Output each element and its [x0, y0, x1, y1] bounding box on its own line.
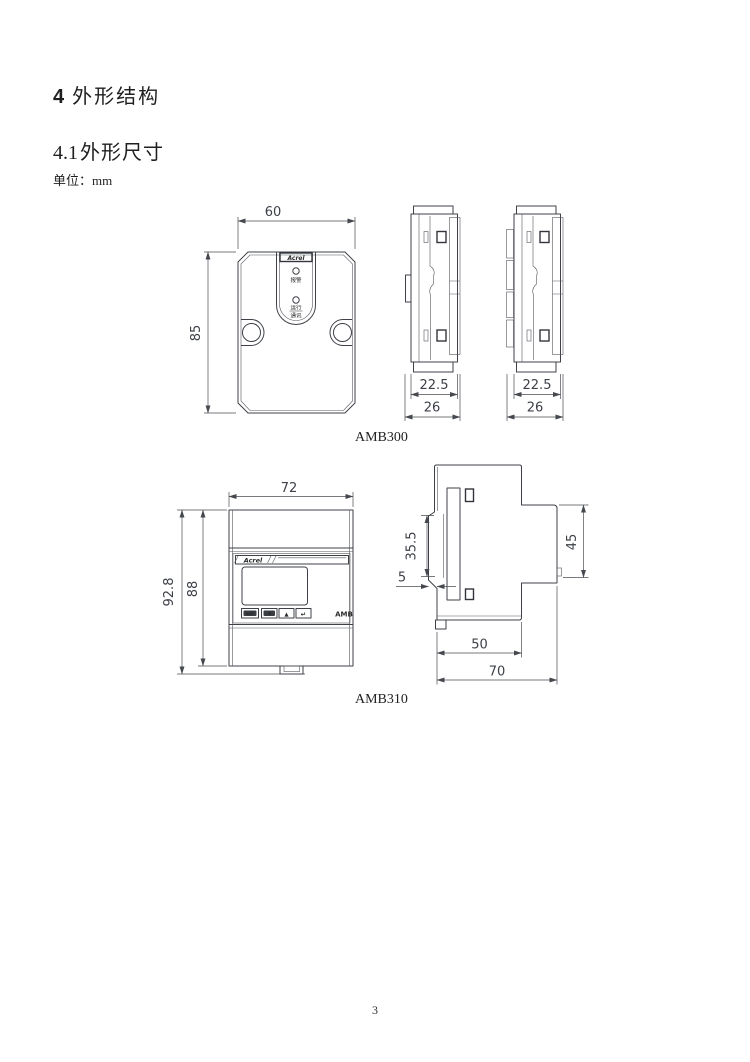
dim-label-88: 88: [186, 581, 201, 598]
run-led-label: 运行: [290, 304, 302, 312]
amb310-body: [229, 510, 353, 674]
dim-label-26: 26: [527, 401, 544, 416]
amb300-side-view-2: 22.5 26: [507, 206, 564, 421]
amb300-side-drawings: 22.5 26: [395, 196, 575, 431]
terminal-tab: [507, 292, 514, 318]
section-title: 外形结构: [72, 86, 160, 108]
left-button: ◀: [262, 609, 278, 619]
amb310-front-drawing: 72 92.8 88 Acrel: [160, 470, 365, 685]
set-button: SET: [242, 609, 259, 619]
dim-label-50: 50: [471, 638, 488, 653]
dimension-35-5: 35.5: [405, 516, 436, 577]
unit-note: 单位：mm: [53, 170, 112, 189]
dim-label-22-5: 22.5: [523, 378, 552, 393]
brand-logo: Acrel: [286, 255, 305, 262]
mount-hole-left: [243, 324, 261, 342]
dimension-height-85: 85: [189, 252, 236, 413]
brand-logo: Acrel: [243, 556, 263, 564]
dimension-width-72: 72: [229, 481, 353, 507]
dim-label-60: 60: [265, 205, 282, 220]
terminal-tab: [507, 261, 514, 290]
amb310-caption: AMB310: [355, 692, 408, 708]
comm-led-label: 通讯: [290, 312, 302, 320]
page-number: 3: [0, 1003, 750, 1018]
amb-model-label: AMB: [335, 611, 353, 619]
dimension-50: 50: [437, 622, 522, 685]
dimension-22-5: 22.5: [411, 374, 458, 399]
amb310-front-panel: Acrel SET ◀ ▲ ↵ AMB: [235, 556, 353, 619]
dim-label-26: 26: [424, 401, 441, 416]
subsection-heading: 4.1外形尺寸: [53, 136, 164, 165]
document-page: 4外形结构 4.1外形尺寸 单位：mm 60 85 Acrel: [0, 0, 750, 1062]
dimension-22-5: 22.5: [514, 374, 561, 399]
amb300-caption: AMB300: [355, 430, 408, 446]
rail-clip-tab: [406, 275, 412, 302]
subsection-number: 4.1: [53, 142, 78, 164]
dim-label-45: 45: [565, 534, 580, 551]
alarm-led-label: 报警: [290, 276, 302, 284]
alarm-led-icon: [293, 268, 299, 274]
dim-label-92-8: 92.8: [162, 578, 177, 607]
enter-button-glyph: ↵: [301, 610, 306, 618]
up-button: ▲: [279, 609, 294, 619]
dim-label-35-5: 35.5: [405, 532, 420, 561]
run-comm-led-icon: [293, 297, 299, 303]
subsection-title: 外形尺寸: [80, 142, 164, 164]
dimension-height-92-8: 92.8: [162, 510, 305, 674]
terminal-tab: [507, 230, 514, 259]
dimension-height-88: 88: [186, 510, 227, 666]
dim-label-85: 85: [189, 325, 204, 342]
section-number: 4: [53, 86, 64, 108]
dim-label-72: 72: [281, 481, 298, 496]
dimension-70: 70: [437, 586, 557, 685]
amb300-front-panel: Acrel 报警 运行 通讯: [277, 252, 316, 325]
amb300-body: [238, 252, 355, 413]
dimension-45: 45: [559, 505, 589, 578]
amb310-side-drawing: 35.5 5 45 50 70: [390, 450, 595, 692]
side-tab: [557, 568, 562, 576]
section-heading: 4外形结构: [53, 80, 160, 109]
dim-label-5: 5: [398, 571, 406, 586]
set-button-label: SET: [246, 611, 254, 616]
amb300-front-drawing: 60 85 Acrel 报警 运行 通讯: [183, 196, 403, 431]
bottom-foot: [436, 620, 447, 629]
amb300-side-view-1: 22.5 26: [405, 206, 460, 421]
mount-hole-right: [334, 324, 352, 342]
up-button-glyph: ▲: [284, 612, 289, 618]
terminal-tab: [507, 320, 514, 347]
enter-button: ↵: [296, 609, 311, 619]
lcd-display: [242, 567, 308, 605]
dimension-width-60: 60: [238, 205, 355, 249]
dim-label-70: 70: [489, 665, 506, 680]
dim-label-22-5: 22.5: [420, 378, 449, 393]
amb310-side-body: [429, 465, 562, 629]
